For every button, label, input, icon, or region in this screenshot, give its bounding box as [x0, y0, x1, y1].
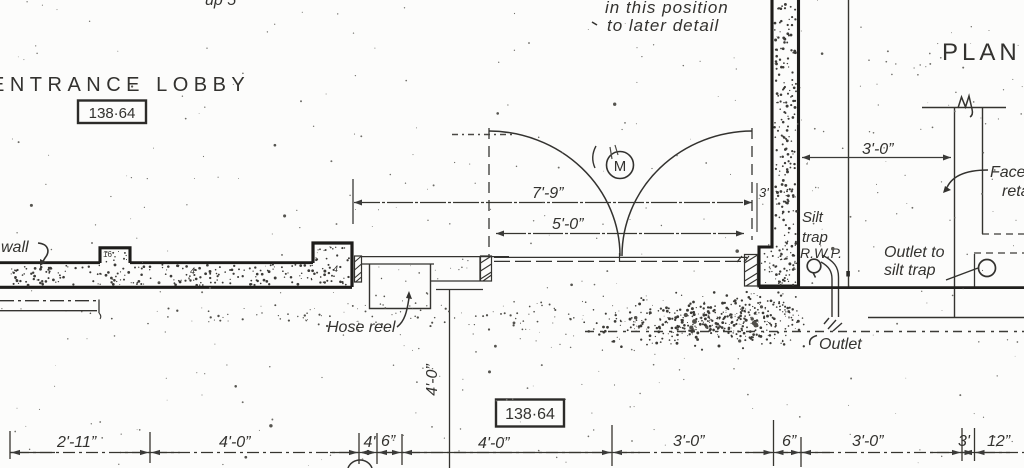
svg-text:6”: 6”: [782, 433, 797, 450]
svg-text:5'-0”: 5'-0”: [552, 216, 584, 233]
svg-text:ENTRANCE LOBBY: ENTRANCE LOBBY: [0, 74, 250, 96]
svg-text:Outlet: Outlet: [819, 336, 862, 353]
svg-text:4: 4: [190, 266, 195, 276]
svg-text:4'-0”: 4'-0”: [478, 435, 510, 452]
svg-text:7'-9”: 7'-9”: [532, 185, 564, 202]
svg-text:3'-0”: 3'-0”: [862, 141, 894, 158]
svg-text:reta: reta: [1002, 183, 1024, 200]
svg-text:M: M: [614, 158, 627, 175]
svg-text:3': 3': [759, 185, 769, 200]
svg-text:to later detail: to later detail: [607, 16, 720, 35]
svg-text:4'-0”: 4'-0”: [219, 434, 251, 451]
svg-text:3'-0”: 3'-0”: [852, 433, 884, 450]
svg-text:4': 4': [364, 434, 377, 451]
svg-text:3'-0”: 3'-0”: [673, 433, 705, 450]
svg-text:PLAN: PLAN: [942, 39, 1021, 66]
svg-text:wall: wall: [1, 239, 29, 256]
svg-text:R.W.P.: R.W.P.: [800, 245, 842, 261]
svg-text:silt trap: silt trap: [884, 262, 936, 279]
svg-text:Face: Face: [990, 164, 1024, 181]
svg-text:3': 3': [958, 433, 971, 450]
svg-text:138·64: 138·64: [505, 406, 555, 423]
svg-text:138·64: 138·64: [89, 105, 136, 122]
svg-text:6”: 6”: [381, 433, 396, 450]
svg-text:2'-11”: 2'-11”: [56, 434, 97, 451]
svg-text:in this position: in this position: [605, 0, 729, 17]
svg-text:up 5: up 5: [205, 0, 236, 9]
svg-text:16: 16: [103, 250, 112, 259]
svg-text:Outlet to: Outlet to: [884, 244, 945, 261]
svg-text:12”: 12”: [987, 433, 1011, 450]
svg-text:4: 4: [333, 264, 338, 274]
svg-text:trap: trap: [802, 229, 828, 246]
